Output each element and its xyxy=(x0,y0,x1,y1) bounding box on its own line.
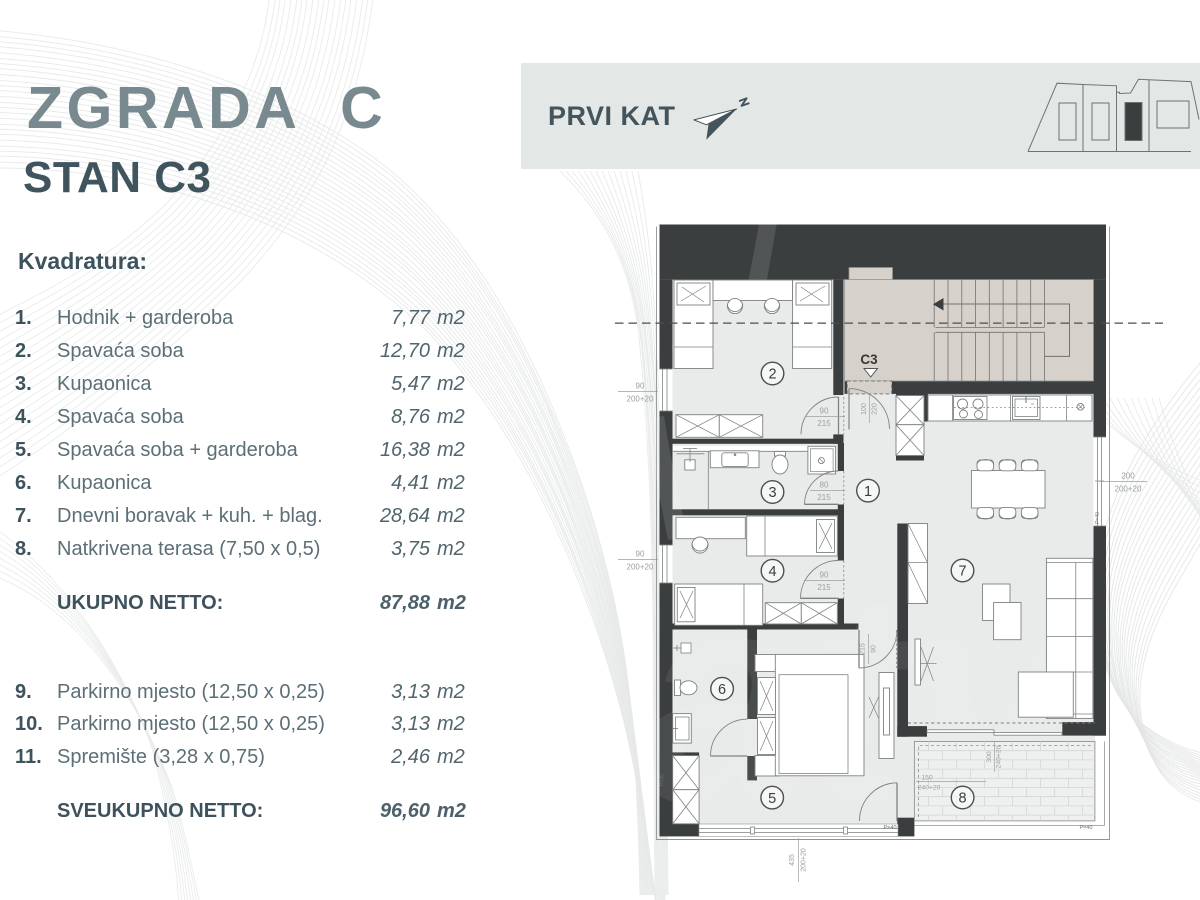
svg-text:7: 7 xyxy=(958,564,966,580)
svg-text:90: 90 xyxy=(820,407,829,416)
svg-text:C3: C3 xyxy=(860,352,878,367)
svg-text:4: 4 xyxy=(768,564,776,580)
svg-text:100: 100 xyxy=(861,403,868,415)
svg-text:90: 90 xyxy=(871,645,878,653)
svg-text:240+20: 240+20 xyxy=(996,745,1003,768)
svg-text:8: 8 xyxy=(959,791,967,807)
svg-text:215: 215 xyxy=(860,643,867,655)
svg-text:435: 435 xyxy=(789,854,796,866)
svg-text:200+20: 200+20 xyxy=(801,848,808,872)
svg-text:200+20: 200+20 xyxy=(627,395,654,404)
svg-text:215: 215 xyxy=(817,583,831,592)
svg-text:P=40: P=40 xyxy=(1080,825,1093,831)
svg-text:P=40: P=40 xyxy=(884,825,897,831)
svg-text:200+20: 200+20 xyxy=(1115,485,1142,494)
svg-text:1: 1 xyxy=(864,484,872,500)
svg-text:90: 90 xyxy=(636,382,645,391)
svg-text:220: 220 xyxy=(872,403,879,415)
svg-text:240+20: 240+20 xyxy=(918,785,941,792)
svg-text:90: 90 xyxy=(820,571,829,580)
svg-text:5: 5 xyxy=(768,791,776,807)
svg-text:80: 80 xyxy=(820,481,829,490)
svg-text:300: 300 xyxy=(986,751,993,763)
svg-text:150: 150 xyxy=(921,775,933,782)
svg-text:215: 215 xyxy=(817,493,831,502)
svg-text:215: 215 xyxy=(817,419,831,428)
svg-text:6: 6 xyxy=(718,682,726,698)
svg-text:2: 2 xyxy=(768,367,776,383)
svg-text:200+20: 200+20 xyxy=(627,563,654,572)
svg-text:200: 200 xyxy=(1121,472,1135,481)
svg-text:P=40: P=40 xyxy=(1095,512,1101,524)
svg-text:P=40: P=40 xyxy=(660,774,666,786)
svg-text:3: 3 xyxy=(768,485,776,501)
svg-text:90: 90 xyxy=(636,550,645,559)
